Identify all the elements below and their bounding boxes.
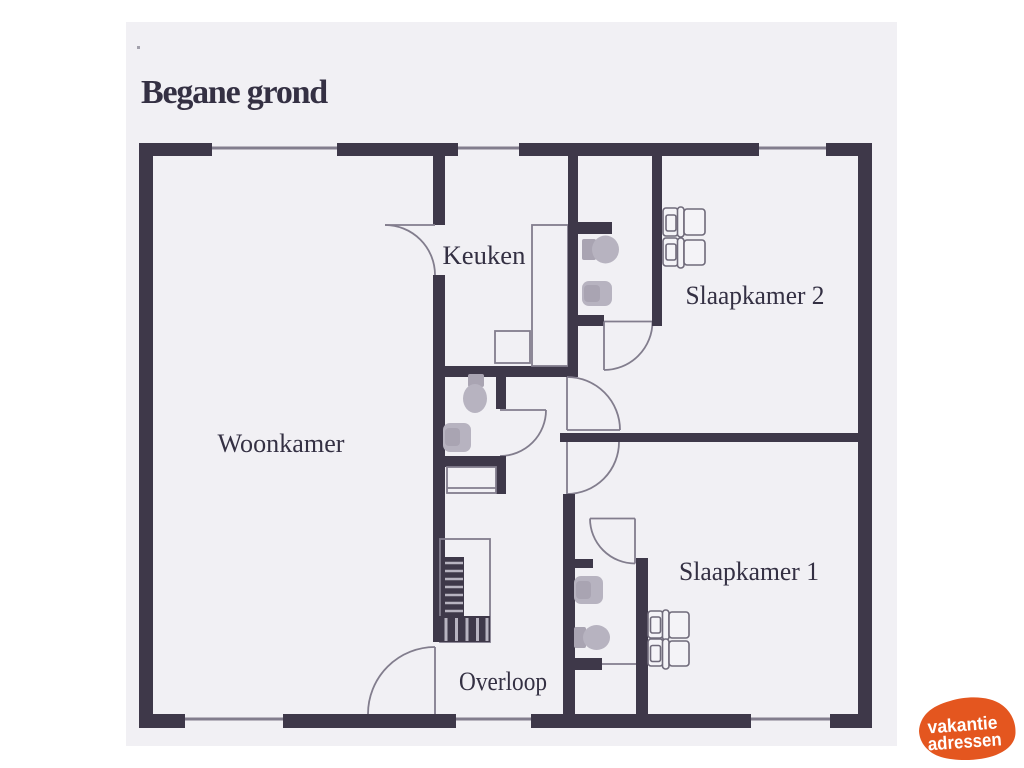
svg-text:Slaapkamer 1: Slaapkamer 1 — [679, 557, 819, 586]
svg-text:Keuken: Keuken — [443, 241, 526, 270]
svg-text:Woonkamer: Woonkamer — [218, 429, 345, 458]
svg-text:Begane grond: Begane grond — [141, 74, 328, 111]
svg-text:Overloop: Overloop — [459, 667, 547, 696]
svg-text:Slaapkamer 2: Slaapkamer 2 — [686, 281, 825, 310]
